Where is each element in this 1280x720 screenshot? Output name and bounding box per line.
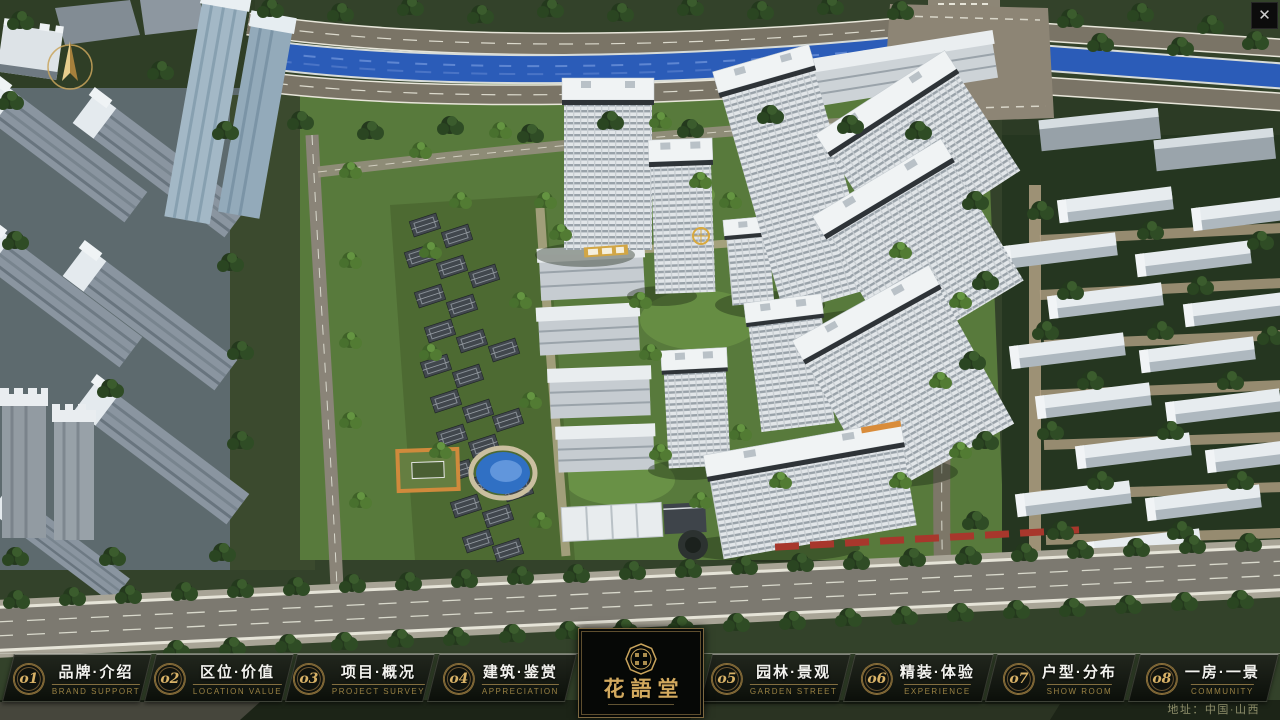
tower <box>661 347 733 468</box>
nav-label-en: SHOW ROOM <box>1047 684 1113 696</box>
nav-label-zh: 户型·分布 <box>1042 661 1117 682</box>
nav-number-badge: o3 <box>294 663 324 693</box>
close-button[interactable]: ✕ <box>1251 2 1278 29</box>
project-logo-panel[interactable]: 花語堂 <box>578 628 704 718</box>
nav-label-en: LOCATION VALUE <box>193 684 282 696</box>
nav-label-zh: 一房·一景 <box>1184 661 1259 682</box>
nav-label-zh: 区位·价值 <box>200 661 275 682</box>
project-address: 地址：中国·山西 <box>1167 701 1260 717</box>
nav-number-badge: o2 <box>155 663 185 693</box>
tower <box>562 78 654 250</box>
nav-item-location-value[interactable]: o2 区位·价值 LOCATION VALUE <box>144 654 293 702</box>
project-seal-icon <box>624 642 658 676</box>
nav-number-badge: o1 <box>14 663 44 693</box>
nav-label-zh: 项目·概况 <box>341 661 416 682</box>
nav-item-architecture[interactable]: o4 建筑·鉴赏 APPRECIATION <box>427 654 576 702</box>
bottom-nav-left: o1 品牌·介绍 BRAND SUPPORT o2 区位·价值 LOCATION… <box>6 654 572 702</box>
sales-presentation-window: ✕ o1 品牌·介绍 BRAND SUPPORT o2 区位·价值 LOCATI… <box>0 0 1280 720</box>
nav-number-badge: o6 <box>861 663 891 693</box>
nav-item-interior-experience[interactable]: o6 精装·体验 EXPERIENCE <box>843 654 993 702</box>
nav-item-room-view[interactable]: o8 一房·一景 COMMUNITY <box>1128 654 1278 702</box>
tower <box>648 138 717 294</box>
aerial-masterplan-render <box>0 0 1280 720</box>
nav-label-en: APPRECIATION <box>482 684 559 696</box>
nav-label-en: PROJECT SURVEY <box>332 684 425 696</box>
nav-number-badge: o7 <box>1004 663 1034 693</box>
nav-label-zh: 园林·景观 <box>757 661 832 682</box>
nav-number-badge: o4 <box>444 663 474 693</box>
tower-crenellated-2 <box>52 404 96 540</box>
nav-number-badge: o8 <box>1146 663 1176 693</box>
nav-label-en: COMMUNITY <box>1190 684 1253 696</box>
nav-item-landscape[interactable]: o5 园林·景观 GARDEN STREET <box>700 654 850 702</box>
nav-label-en: EXPERIENCE <box>903 684 970 696</box>
nav-label-en: GARDEN STREET <box>750 684 838 696</box>
nav-label-zh: 品牌·介绍 <box>58 661 133 682</box>
swimming-pond <box>471 448 535 498</box>
nav-number-badge: o5 <box>712 663 742 693</box>
logo-divider <box>608 704 674 705</box>
nav-item-floorplan-distribution[interactable]: o7 户型·分布 SHOW ROOM <box>985 654 1135 702</box>
project-logo-title: 花語堂 <box>598 678 685 699</box>
nav-label-zh: 建筑·鉴赏 <box>483 661 558 682</box>
nav-item-brand-intro[interactable]: o1 品牌·介绍 BRAND SUPPORT <box>2 654 151 702</box>
nav-label-zh: 精装·体验 <box>899 661 974 682</box>
tower-crenellated-1 <box>0 388 48 538</box>
bottom-nav-right: o5 园林·景观 GARDEN STREET o6 精装·体验 EXPERIEN… <box>704 654 1274 702</box>
nav-label-en: BRAND SUPPORT <box>52 684 140 696</box>
nav-item-project-overview[interactable]: o3 项目·概况 PROJECT SURVEY <box>285 654 434 702</box>
